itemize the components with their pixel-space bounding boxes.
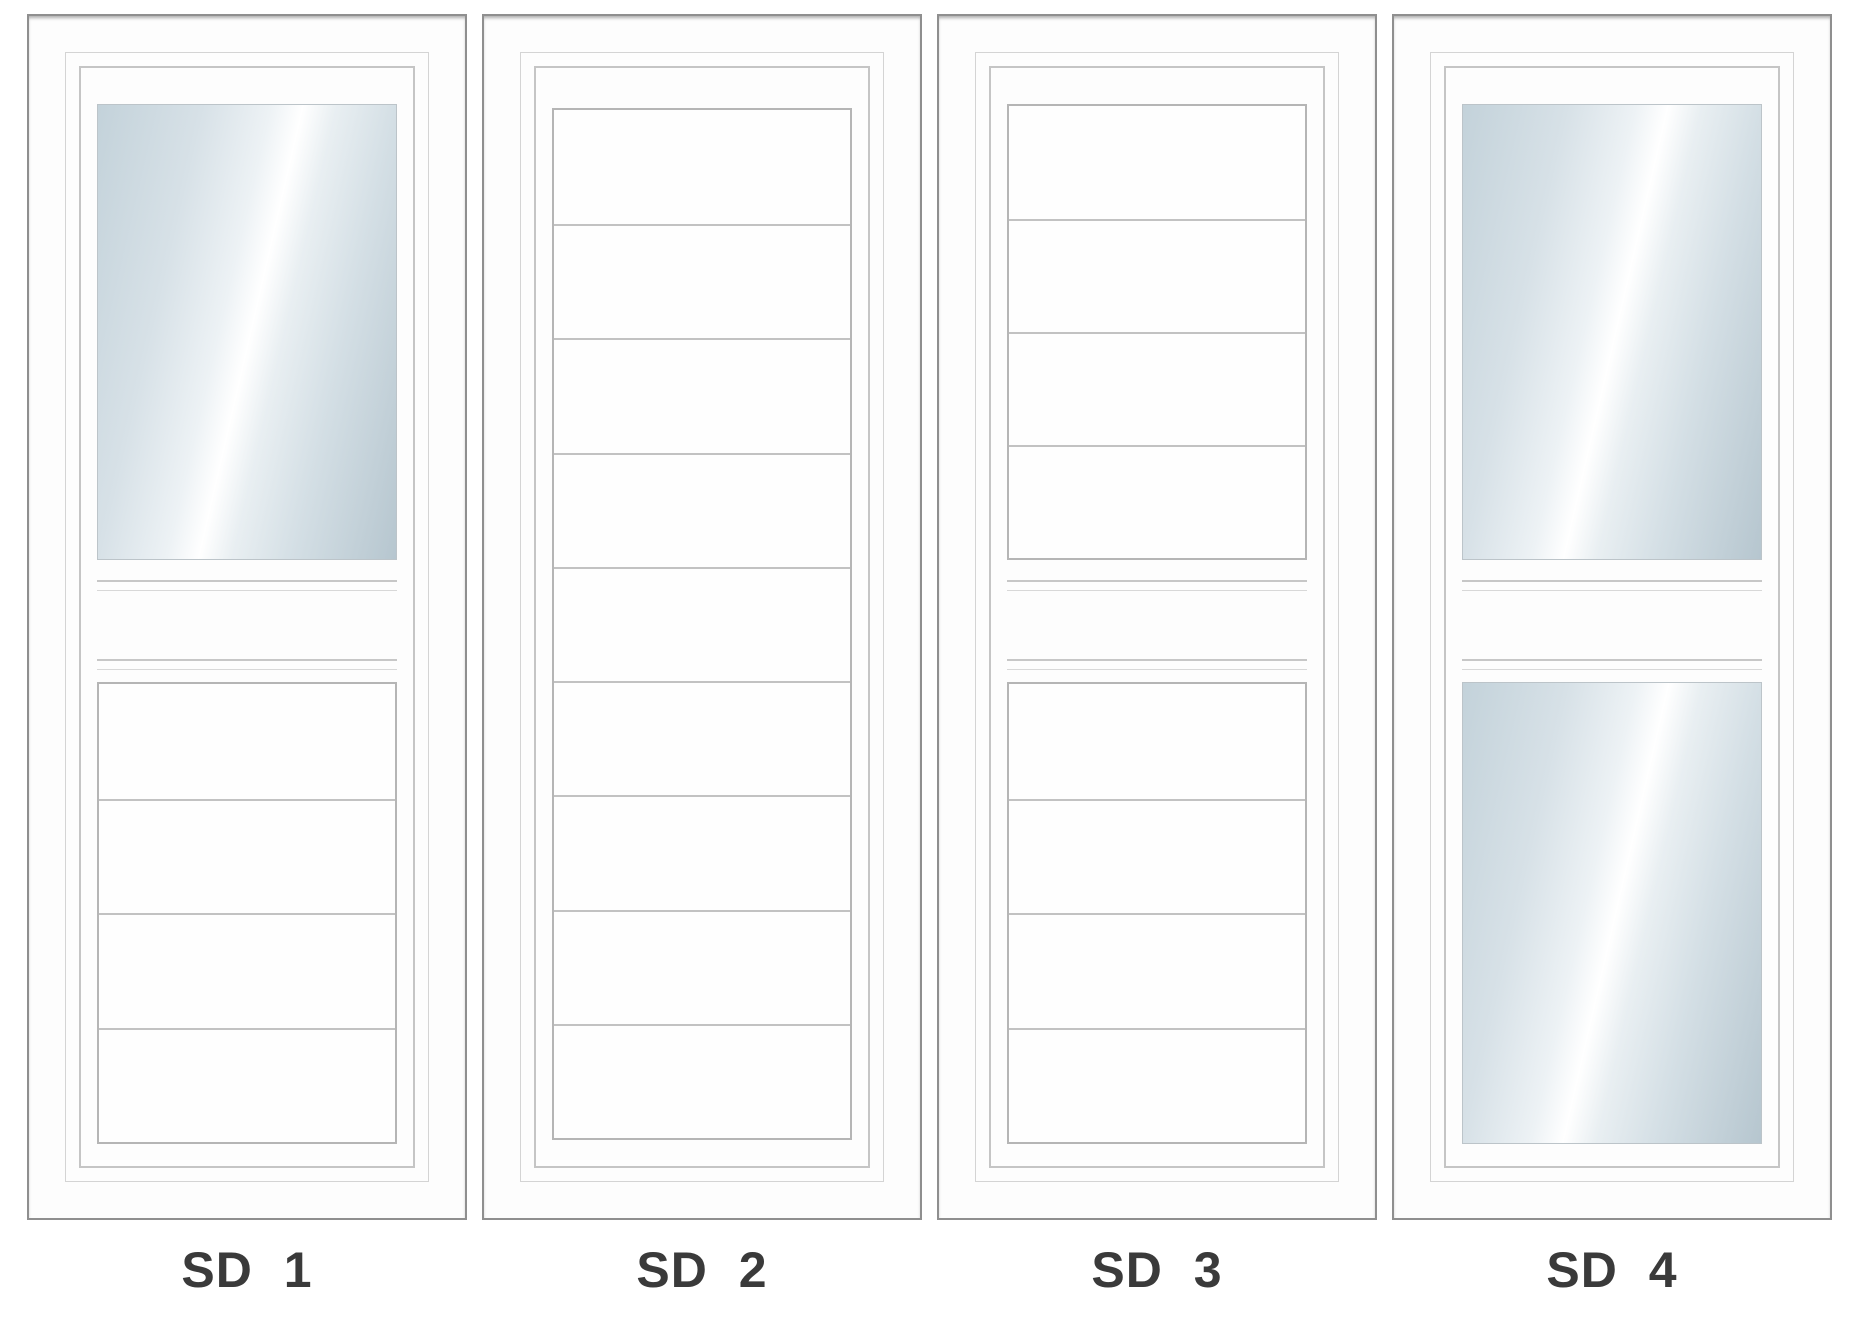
mid-rail-groove-lines — [97, 580, 397, 591]
panel-groove-line — [99, 913, 395, 915]
door-content-area — [1462, 104, 1762, 1144]
panel-groove-line — [554, 453, 850, 455]
mid-rail-groove-lines — [1007, 659, 1307, 670]
glass-pane — [1462, 682, 1762, 1144]
door-drawing-sd3 — [937, 14, 1377, 1220]
mid-rail-groove-lines — [97, 659, 397, 670]
door-drawing-sd4 — [1392, 14, 1832, 1220]
panel-groove-line — [554, 224, 850, 226]
panel-groove-line — [1009, 332, 1305, 334]
glass-pane — [97, 104, 397, 560]
panel-groove-line — [1009, 445, 1305, 447]
glass-pane — [1462, 104, 1762, 560]
door-content-area — [1007, 104, 1307, 1144]
raised-panel — [1007, 104, 1307, 560]
door-card-sd1[interactable]: SD 1 — [27, 14, 467, 1300]
panel-groove-line — [554, 795, 850, 797]
panel-groove-line — [554, 681, 850, 683]
panel-groove-line — [554, 338, 850, 340]
panel-groove-line — [1009, 1028, 1305, 1030]
mid-rail-groove-lines — [1007, 580, 1307, 591]
panel-groove-line — [554, 910, 850, 912]
door-card-sd2[interactable]: SD 2 — [482, 14, 922, 1300]
sliding-door-design-board: SD 1 SD 2 SD 3 SD 4 — [0, 0, 1859, 1300]
mid-rail-groove-lines — [1462, 580, 1762, 591]
door-label-sd2: SD 2 — [482, 1242, 922, 1300]
door-card-sd4[interactable]: SD 4 — [1392, 14, 1832, 1300]
door-label-sd1: SD 1 — [27, 1242, 467, 1300]
panel-groove-line — [554, 567, 850, 569]
door-label-sd4: SD 4 — [1392, 1242, 1832, 1300]
door-card-sd3[interactable]: SD 3 — [937, 14, 1377, 1300]
panel-groove-line — [99, 799, 395, 801]
door-drawing-sd1 — [27, 14, 467, 1220]
door-drawing-sd2 — [482, 14, 922, 1220]
raised-panel — [1007, 682, 1307, 1144]
panel-groove-line — [554, 1024, 850, 1026]
panel-groove-line — [1009, 799, 1305, 801]
mid-rail-groove-lines — [1462, 659, 1762, 670]
door-content-area — [552, 104, 852, 1144]
panel-groove-line — [99, 1028, 395, 1030]
door-label-sd3: SD 3 — [937, 1242, 1377, 1300]
panel-groove-line — [1009, 913, 1305, 915]
raised-panel — [552, 108, 852, 1140]
panel-groove-line — [1009, 219, 1305, 221]
door-content-area — [97, 104, 397, 1144]
raised-panel — [97, 682, 397, 1144]
